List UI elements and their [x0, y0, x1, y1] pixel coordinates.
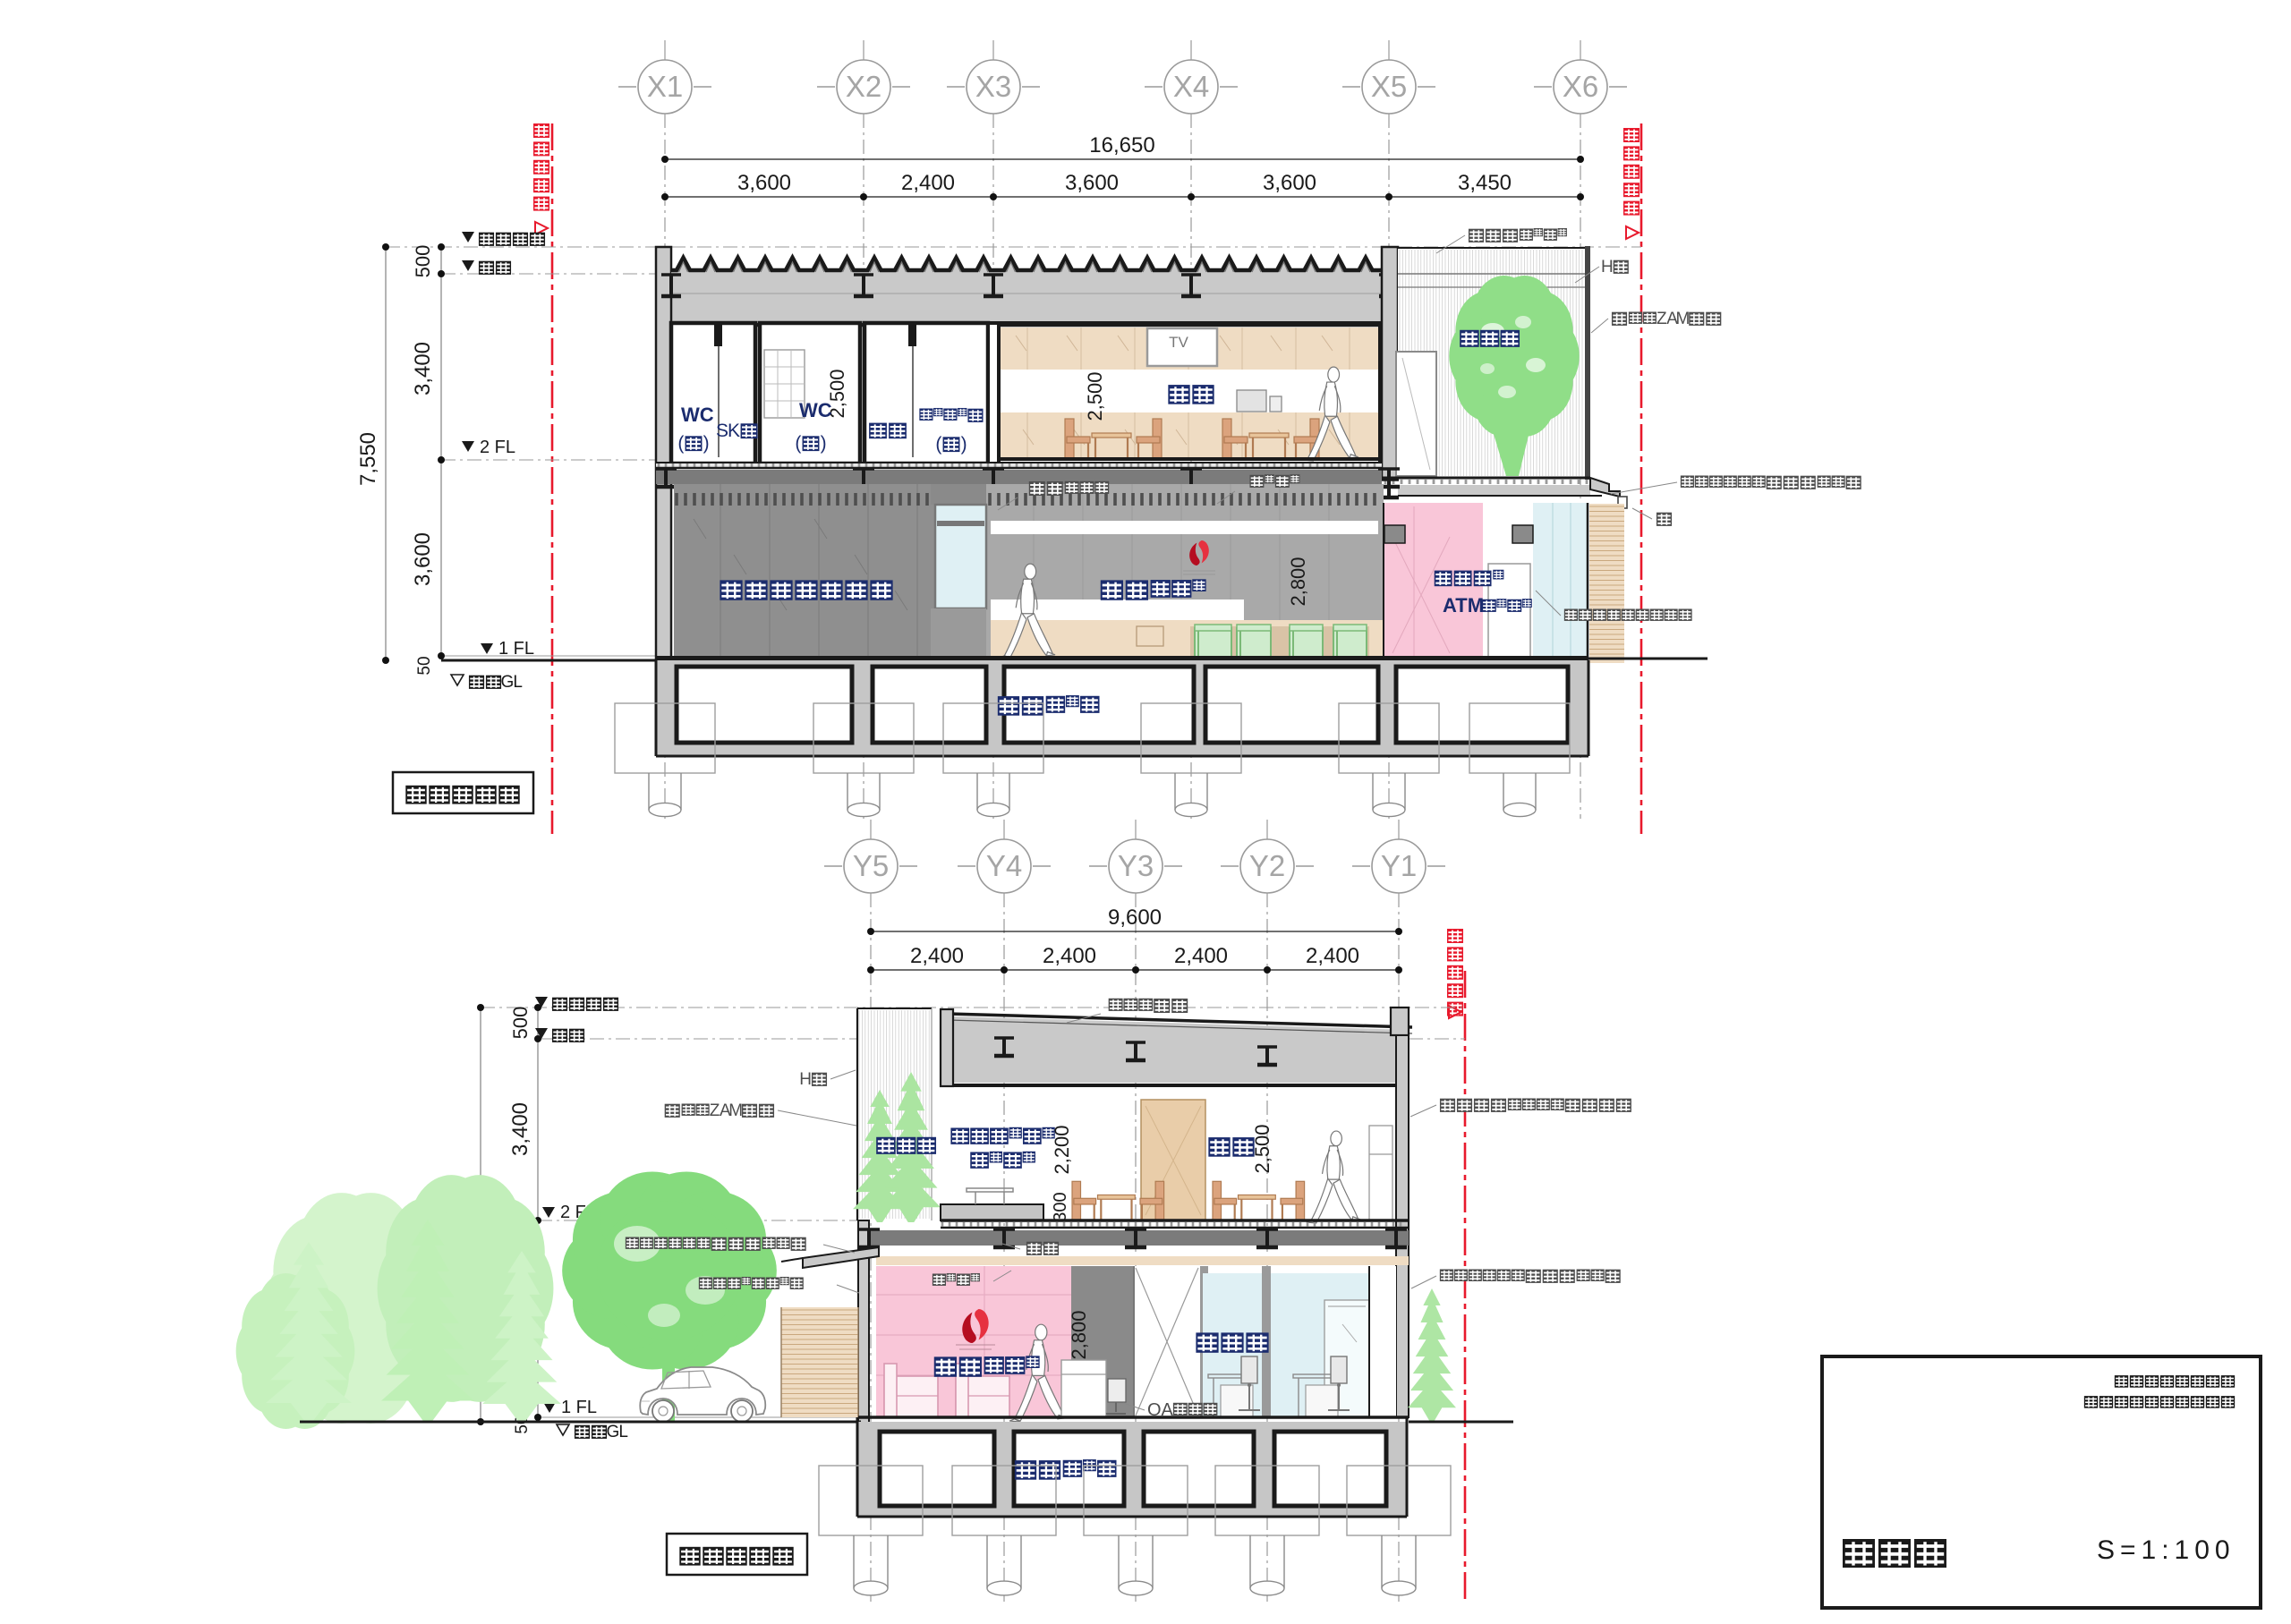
svg-text:2,500: 2,500 [1251, 1124, 1273, 1173]
svg-text:X3: X3 [975, 70, 1011, 103]
svg-text:X4: X4 [1173, 70, 1209, 103]
svg-text:ATM: ATM [1443, 594, 1484, 616]
svg-text:H: H [799, 1070, 812, 1089]
svg-text:X2: X2 [846, 70, 881, 103]
svg-text:1 FL: 1 FL [498, 639, 534, 659]
svg-text:G: G [606, 1423, 619, 1441]
svg-text:WC: WC [799, 399, 832, 421]
svg-text:1 FL: 1 FL [561, 1398, 597, 1417]
svg-text:2,500: 2,500 [1084, 371, 1106, 421]
svg-text:2,400: 2,400 [1043, 944, 1096, 968]
svg-text:500: 500 [412, 245, 434, 278]
svg-text:2 FL: 2 FL [480, 438, 515, 457]
svg-text:2,400: 2,400 [1174, 944, 1228, 968]
svg-text:S=1:100: S=1:100 [2097, 1535, 2236, 1565]
svg-text:2,400: 2,400 [1306, 944, 1359, 968]
svg-text:Y2: Y2 [1249, 849, 1285, 882]
svg-text:Y1: Y1 [1381, 849, 1417, 882]
svg-text:Y5: Y5 [853, 849, 889, 882]
svg-text:3,600: 3,600 [1065, 171, 1119, 195]
svg-text:X1: X1 [647, 70, 683, 103]
svg-text:7,550: 7,550 [356, 432, 380, 486]
svg-text:300: 300 [1051, 1192, 1070, 1221]
svg-text:3,600: 3,600 [737, 171, 791, 195]
svg-text:(: ( [935, 434, 941, 455]
svg-text:3,400: 3,400 [411, 342, 435, 395]
svg-text:2,800: 2,800 [1068, 1310, 1090, 1359]
svg-text:Y3: Y3 [1118, 849, 1154, 882]
svg-text:3,400: 3,400 [508, 1102, 532, 1156]
svg-text:500: 500 [509, 1007, 532, 1040]
svg-text:WC: WC [681, 404, 714, 426]
svg-text:2,400: 2,400 [910, 944, 964, 968]
svg-text:Z: Z [710, 1101, 720, 1120]
svg-text:9,600: 9,600 [1108, 906, 1162, 930]
svg-text:): ) [703, 433, 710, 454]
svg-text:L: L [513, 673, 523, 692]
svg-text:3,600: 3,600 [411, 532, 435, 586]
svg-text:): ) [821, 433, 827, 454]
svg-text:S: S [716, 421, 728, 441]
svg-text:TV: TV [1169, 334, 1188, 351]
svg-text:2,800: 2,800 [1287, 557, 1309, 606]
svg-text:L: L [618, 1423, 628, 1441]
svg-text:(: ( [677, 433, 684, 454]
svg-text:): ) [961, 434, 967, 455]
svg-text:(: ( [795, 433, 801, 454]
svg-text:3,600: 3,600 [1263, 171, 1316, 195]
svg-text:M: M [728, 1101, 743, 1120]
svg-text:K: K [728, 421, 740, 441]
svg-text:3,450: 3,450 [1458, 171, 1512, 195]
svg-text:50: 50 [415, 656, 434, 675]
svg-text:2,200: 2,200 [1051, 1125, 1073, 1174]
svg-text:Y4: Y4 [986, 849, 1022, 882]
svg-text:X6: X6 [1563, 70, 1598, 103]
svg-text:X5: X5 [1371, 70, 1407, 103]
svg-text:16,650: 16,650 [1089, 133, 1154, 157]
svg-text:G: G [500, 673, 514, 692]
svg-text:H: H [1601, 258, 1614, 276]
svg-text:2,400: 2,400 [901, 171, 955, 195]
svg-text:Z: Z [1657, 310, 1667, 328]
svg-text:M: M [1675, 310, 1690, 328]
